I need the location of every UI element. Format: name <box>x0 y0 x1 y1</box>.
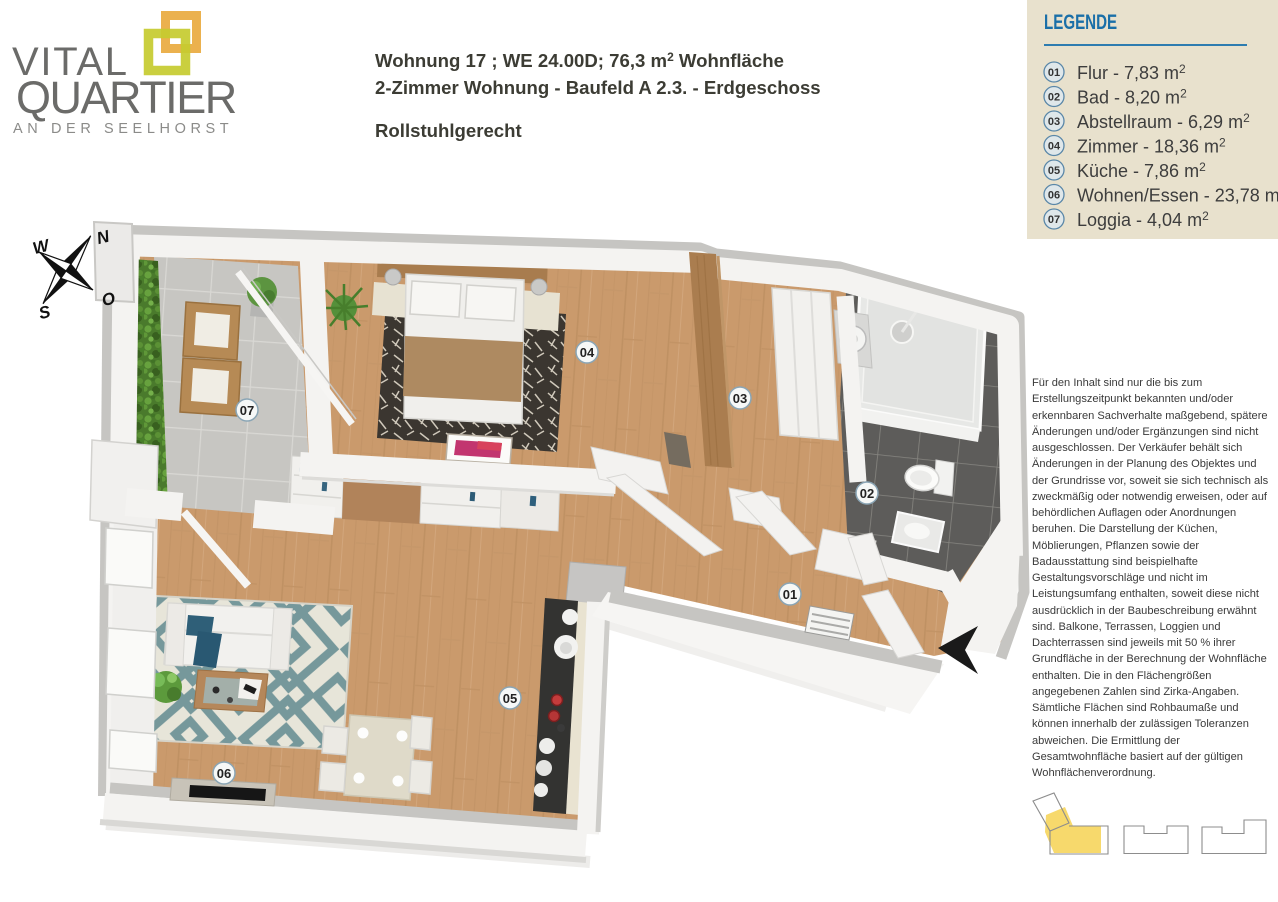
svg-text:04: 04 <box>580 345 595 360</box>
svg-text:07: 07 <box>240 403 254 418</box>
svg-text:05: 05 <box>503 691 517 706</box>
svg-text:02: 02 <box>860 486 874 501</box>
svg-text:03: 03 <box>733 391 747 406</box>
svg-text:W: W <box>31 235 53 258</box>
svg-text:01: 01 <box>783 587 797 602</box>
svg-text:N: N <box>95 227 112 249</box>
svg-text:S: S <box>37 302 53 323</box>
svg-text:06: 06 <box>217 766 231 781</box>
svg-text:O: O <box>100 289 117 311</box>
